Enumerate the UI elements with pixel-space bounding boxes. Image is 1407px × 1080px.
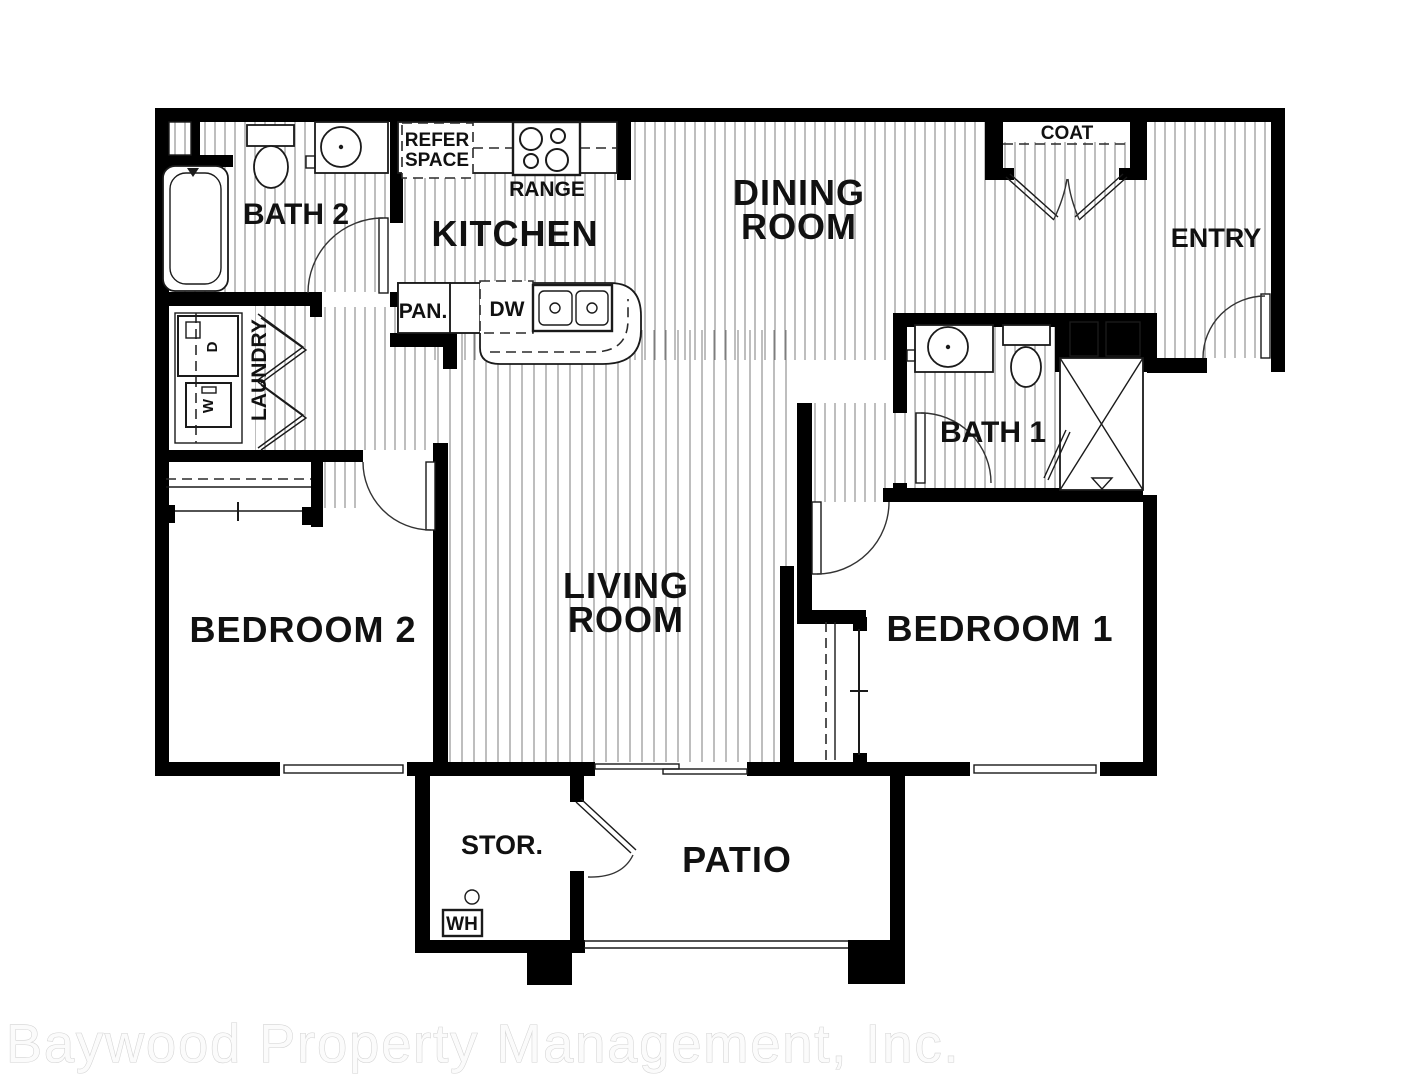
label-refer-2: SPACE	[405, 150, 469, 171]
room-label-bedroom2: BEDROOM 2	[189, 609, 416, 650]
wall-segment	[160, 450, 363, 462]
floor-closet-side	[323, 462, 363, 508]
bedroom1-door-leaf	[812, 502, 821, 574]
wall-segment	[1143, 495, 1157, 776]
toilet-tank	[1003, 325, 1050, 345]
wall-segment	[853, 617, 867, 631]
wall-segment	[890, 776, 905, 942]
room-label-patio: PATIO	[682, 839, 792, 880]
wall-segment	[415, 776, 430, 953]
wall-segment	[1003, 168, 1014, 180]
wall-segment	[155, 108, 1285, 122]
floor-plan: BATH 2 KITCHEN DINING ROOM COAT ENTRY RE…	[0, 0, 1407, 1080]
room-label-storage: STOR.	[461, 830, 543, 860]
label-washer: W	[200, 398, 217, 413]
wall-segment	[310, 303, 322, 317]
bedroom2-window	[280, 762, 407, 776]
wall-segment	[155, 762, 280, 776]
wall-segment	[617, 122, 631, 180]
wall-segment	[1130, 122, 1147, 180]
wall-segment	[780, 566, 794, 776]
floor-living	[433, 330, 797, 762]
wall-segment	[1271, 108, 1285, 372]
room-label-kitchen: KITCHEN	[432, 213, 599, 254]
label-refer-1: REFER	[405, 130, 470, 151]
label-pantry: PAN.	[399, 300, 448, 323]
floor-hall-notch	[810, 403, 893, 502]
wall-segment	[443, 347, 457, 369]
entry-door-leaf	[1261, 294, 1270, 358]
label-water-heater: WH	[446, 914, 478, 935]
wall-segment	[848, 940, 905, 984]
bedroom1-window	[970, 762, 1100, 776]
bedroom2-door-leaf	[426, 462, 435, 530]
wall-segment	[853, 753, 867, 767]
wall-segment	[390, 333, 457, 347]
wall-segment	[985, 122, 1003, 180]
label-dryer: D	[204, 341, 221, 352]
room-label-bath2: BATH 2	[243, 198, 349, 231]
room-label-coat: COAT	[1041, 123, 1094, 144]
room-label-bath1: BATH 1	[940, 416, 1046, 449]
wall-segment	[160, 505, 175, 523]
wall-segment	[570, 871, 584, 953]
room-label-dining-2: ROOM	[741, 206, 857, 247]
wall-segment	[169, 292, 322, 306]
toilet-bowl	[254, 146, 288, 188]
wall-segment	[570, 776, 584, 802]
sink-drain	[339, 145, 343, 149]
room-label-laundry: LAUNDRY	[248, 319, 271, 421]
watermark: Baywood Property Management, Inc.	[6, 1014, 960, 1074]
windows	[280, 762, 1100, 776]
room-label-bedroom1: BEDROOM 1	[886, 608, 1113, 649]
wall-segment	[302, 507, 323, 525]
range	[513, 122, 580, 175]
room-label-living-2: ROOM	[568, 599, 684, 640]
bathtub	[163, 166, 228, 291]
wall-segment	[1119, 168, 1130, 180]
bath1-door-leaf	[916, 413, 925, 483]
label-dishwasher: DW	[490, 298, 525, 321]
toilet-tank	[247, 125, 294, 146]
sink-drain	[946, 345, 950, 349]
wall-segment	[797, 403, 812, 624]
bath2-door-leaf	[379, 218, 388, 293]
label-range: RANGE	[509, 178, 585, 201]
wall-segment	[893, 313, 907, 413]
wall-segment	[527, 951, 572, 985]
room-label-entry: ENTRY	[1171, 223, 1262, 253]
toilet-bowl	[1011, 347, 1041, 387]
